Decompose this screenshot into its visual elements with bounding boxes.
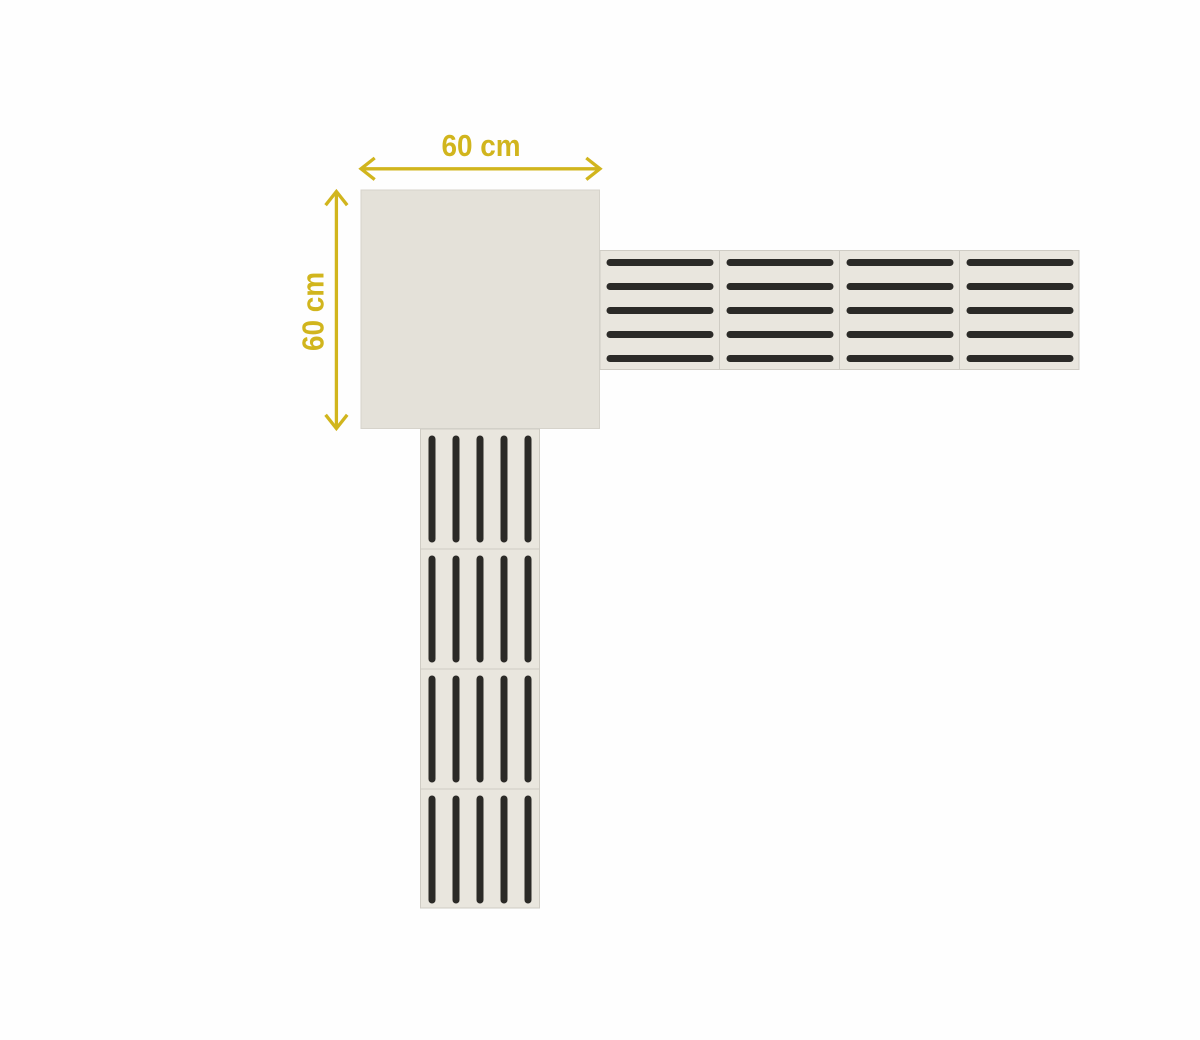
svg-text:60 cm: 60 cm — [296, 272, 331, 351]
svg-text:60 cm: 60 cm — [441, 129, 520, 164]
